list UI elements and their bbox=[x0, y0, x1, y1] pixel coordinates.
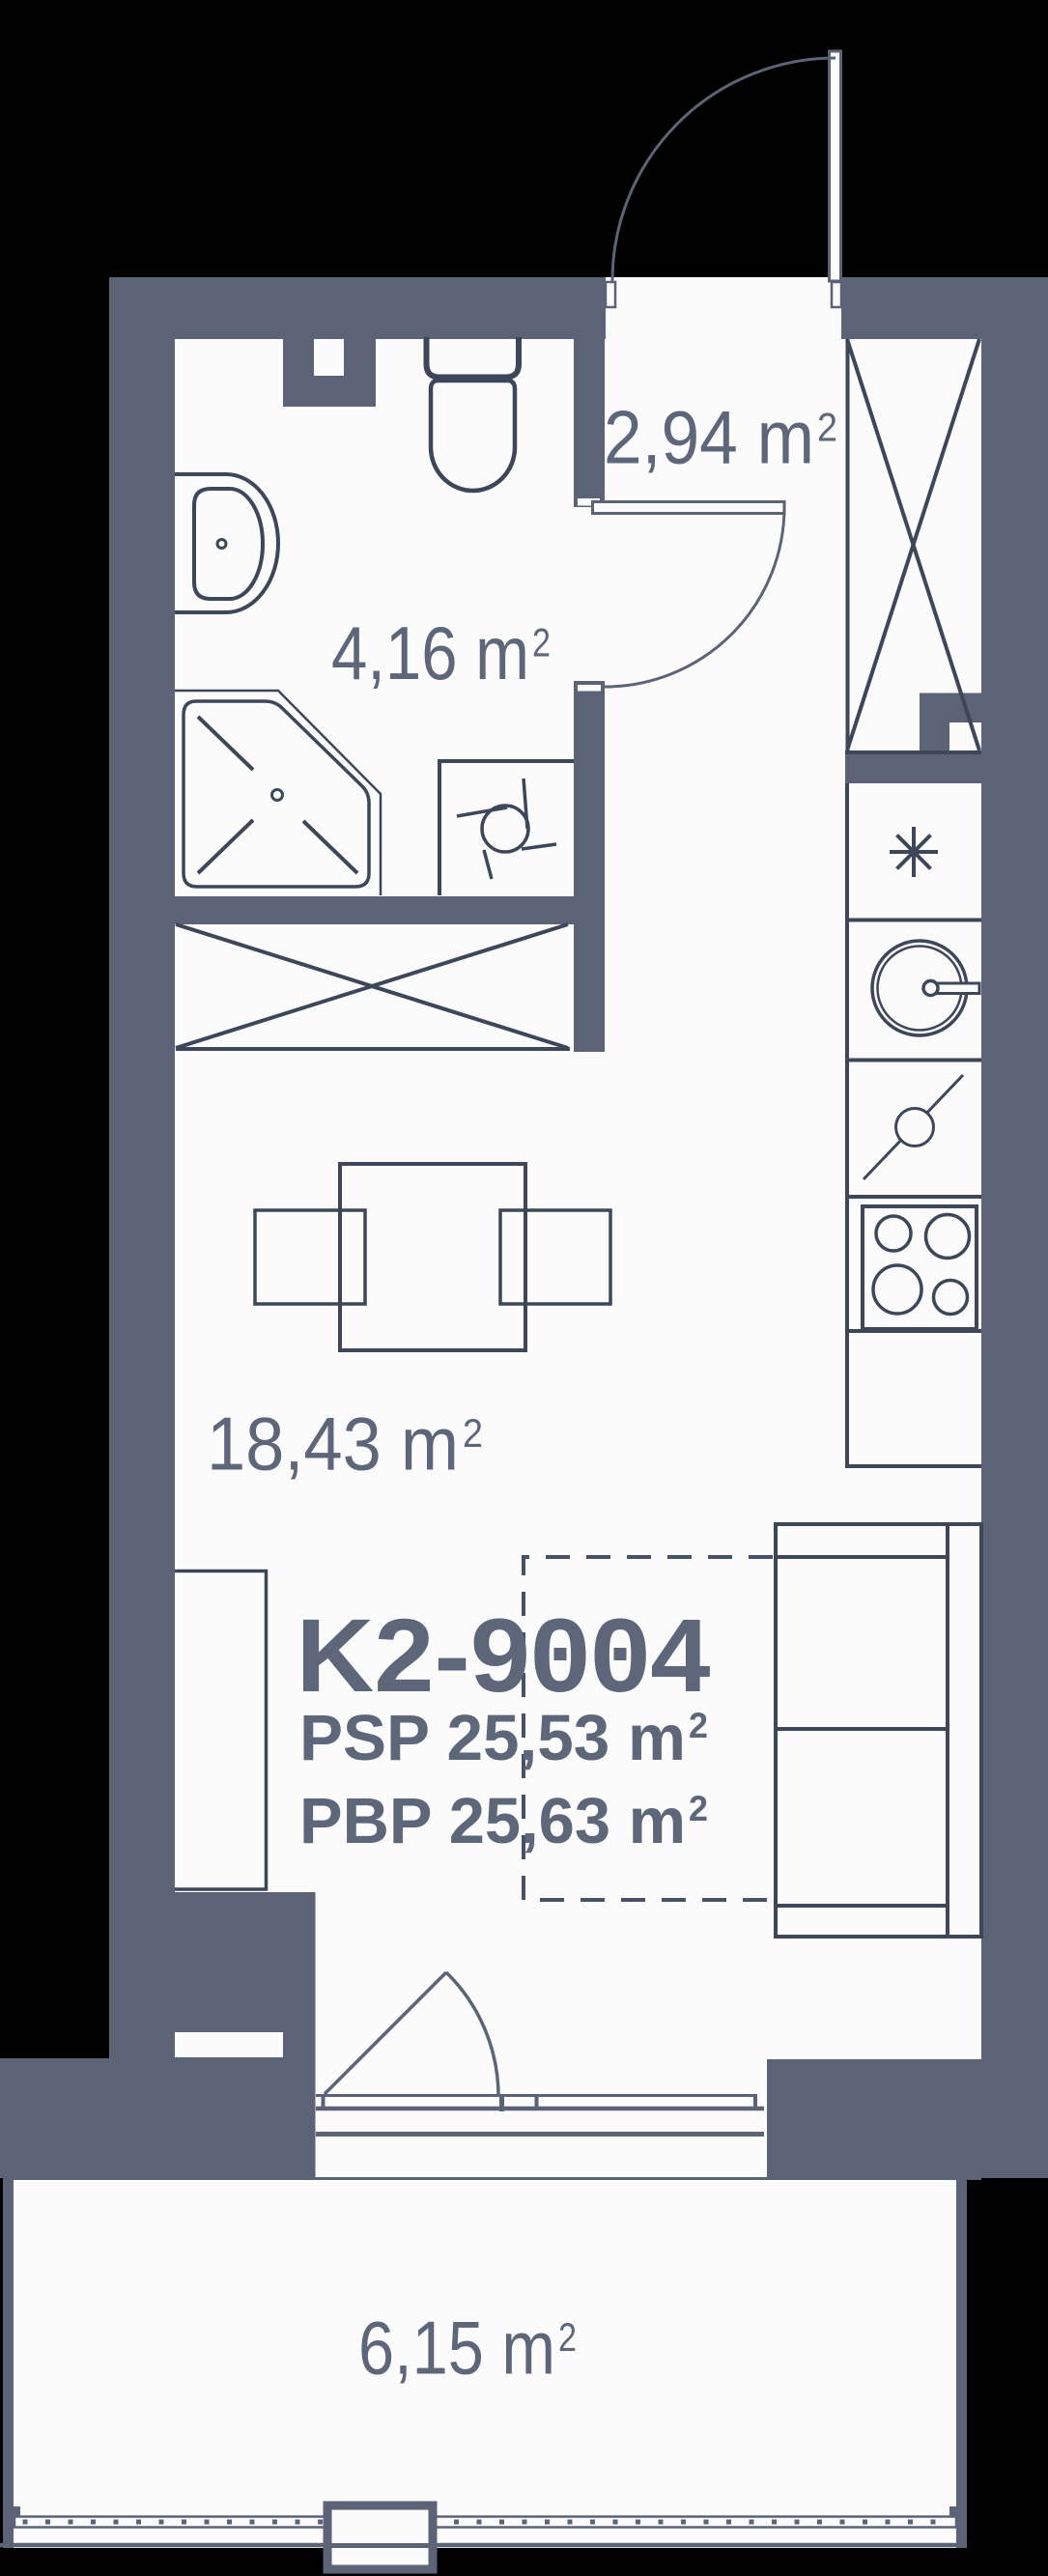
svg-text:PSP 25,53 m: PSP 25,53 m bbox=[299, 1702, 686, 1774]
svg-text:2: 2 bbox=[817, 405, 837, 450]
svg-text:PBP 25,63 m: PBP 25,63 m bbox=[299, 1785, 686, 1857]
svg-text:4,16 m: 4,16 m bbox=[331, 610, 529, 695]
svg-text:2: 2 bbox=[689, 1789, 708, 1828]
svg-text:18,43 m: 18,43 m bbox=[207, 1401, 459, 1486]
svg-text:2: 2 bbox=[463, 1410, 483, 1456]
svg-text:2: 2 bbox=[558, 2314, 577, 2360]
svg-text:2: 2 bbox=[532, 620, 551, 665]
svg-text:2,94 m: 2,94 m bbox=[604, 395, 814, 480]
svg-text:6,15 m: 6,15 m bbox=[358, 2306, 555, 2391]
svg-text:K2-9004: K2-9004 bbox=[297, 1597, 711, 1713]
svg-text:2: 2 bbox=[689, 1706, 708, 1745]
